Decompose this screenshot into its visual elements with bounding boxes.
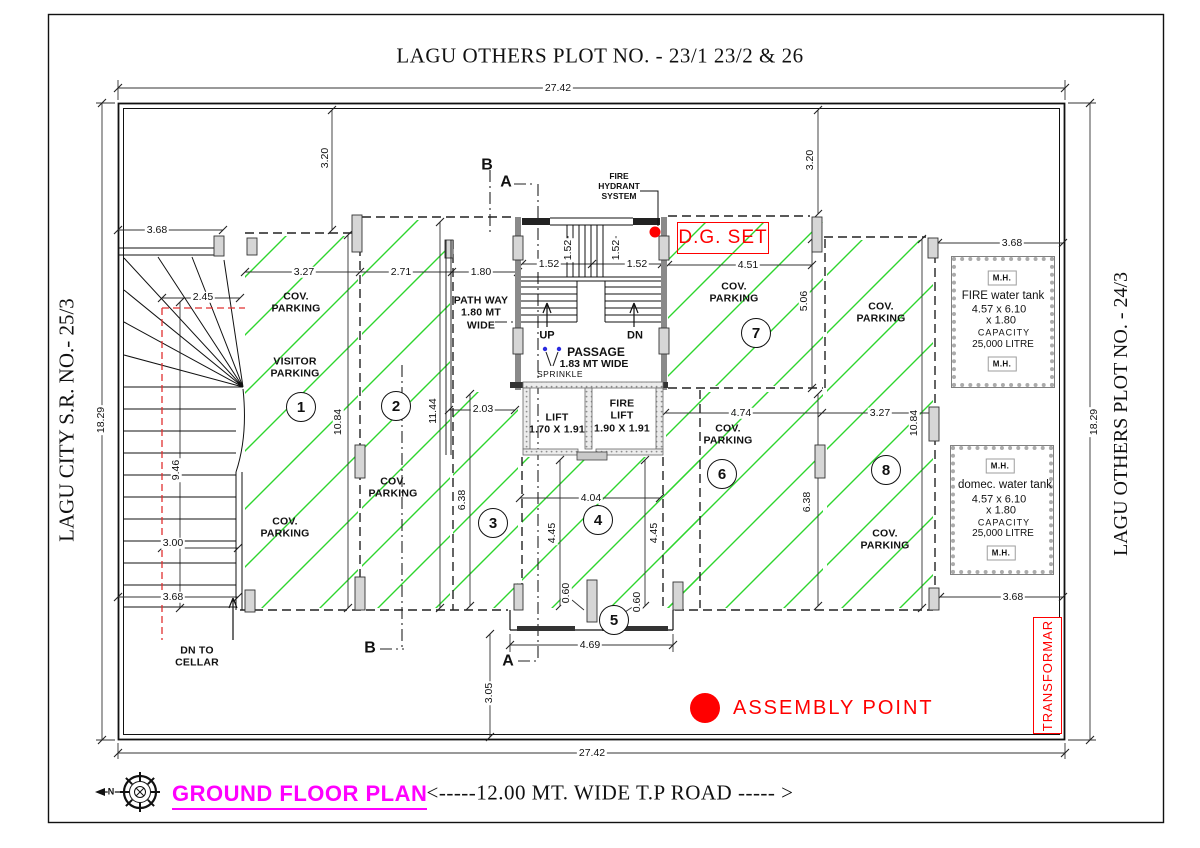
dim-1084-left: 10.84 xyxy=(333,407,344,437)
fire-tank-capacity-label: CAPACITY xyxy=(978,328,1030,339)
parking-circle-1: 1 xyxy=(286,392,316,422)
transformer-box: TRANSFORMAR xyxy=(1033,617,1062,734)
dim-320-right: 3.20 xyxy=(805,148,816,172)
dim-1084-right: 10.84 xyxy=(909,408,920,438)
dim-width-top: 27.42 xyxy=(543,83,573,94)
dim-152-a: 1.52 xyxy=(537,259,561,270)
dim-327-right: 3.27 xyxy=(868,408,892,419)
manhole-label-3: M.H. xyxy=(986,459,1015,474)
assembly-point-label: ASSEMBLY POINT xyxy=(733,697,934,721)
dim-469: 4.69 xyxy=(578,640,602,651)
parking-circle-4: 4 xyxy=(583,505,613,535)
cov-parking-label-3: COV. PARKING xyxy=(260,516,309,541)
parking-circle-2: 2 xyxy=(381,391,411,421)
parking-circle-6: 6 xyxy=(707,459,737,489)
fire-tank-name: FIRE water tank xyxy=(962,290,1044,304)
manhole-label-4: M.H. xyxy=(987,546,1016,561)
dim-060-left: 0.60 xyxy=(561,581,572,605)
dim-height-right: 18.29 xyxy=(1089,407,1100,437)
transformer-label: TRANSFORMAR xyxy=(1040,619,1055,730)
cov-parking-label-4: COV. PARKING xyxy=(709,281,758,306)
dim-474: 4.74 xyxy=(729,408,753,419)
fire-tank-size2: x 1.80 xyxy=(986,315,1016,328)
parking-circle-5: 5 xyxy=(599,605,629,635)
cov-parking-label-2: COV. PARKING xyxy=(368,476,417,501)
visitor-parking-label: VISITOR PARKING xyxy=(270,356,319,381)
right-plot-label: LAGU OTHERS PLOT NO. - 24/3 xyxy=(1110,272,1134,556)
north-letter: N xyxy=(108,787,115,798)
dim-203: 2.03 xyxy=(471,404,495,415)
dim-451: 4.51 xyxy=(736,260,760,271)
dim-width-bottom: 27.42 xyxy=(577,748,607,759)
dim-060-right: 0.60 xyxy=(632,590,643,614)
road-label: <-----12.00 MT. WIDE T.P ROAD ----- > xyxy=(426,781,793,806)
floor-plan-canvas: LAGU OTHERS PLOT NO. - 23/1 23/2 & 26 LA… xyxy=(0,0,1200,848)
domestic-tank-capacity-label: CAPACITY xyxy=(978,518,1030,529)
manhole-label-2: M.H. xyxy=(988,357,1017,372)
manhole-label-1: M.H. xyxy=(988,271,1017,286)
domestic-tank-capacity: 25,000 LITRE xyxy=(972,528,1034,540)
dim-506: 5.06 xyxy=(799,289,810,313)
dim-445-right: 4.45 xyxy=(649,521,660,545)
dim-180: 1.80 xyxy=(469,267,493,278)
dim-320-left: 3.20 xyxy=(320,146,331,170)
fire-tank-capacity: 25,000 LITRE xyxy=(972,339,1034,351)
dim-271: 2.71 xyxy=(389,267,413,278)
section-b-bottom: B xyxy=(364,640,376,659)
dim-1144: 11.44 xyxy=(428,396,439,426)
fire-hydrant-label: FIRE HYDRANT SYSTEM xyxy=(598,171,640,201)
dim-setback-bl: 3.68 xyxy=(161,592,185,603)
dim-300: 3.00 xyxy=(161,538,185,549)
dg-set-box: D.G. SET xyxy=(677,222,769,254)
assembly-point-marker xyxy=(690,693,720,723)
parking-circle-3: 3 xyxy=(478,508,508,538)
dim-404: 4.04 xyxy=(579,493,603,504)
parking-circle-7: 7 xyxy=(741,318,771,348)
plan-title: GROUND FLOOR PLAN xyxy=(172,781,427,810)
sprinkle-label: SPRINKLE xyxy=(537,369,583,379)
domestic-tank-name: domec. water tank xyxy=(958,479,1052,493)
page-title: LAGU OTHERS PLOT NO. - 23/1 23/2 & 26 xyxy=(396,44,803,69)
dim-setback-br: 3.68 xyxy=(1001,592,1025,603)
dg-set-label: D.G. SET xyxy=(678,227,767,249)
lift-label: LIFT 1.70 X 1.91 xyxy=(529,412,585,437)
dim-height-left: 18.29 xyxy=(96,405,107,435)
cov-parking-label-5: COV. PARKING xyxy=(703,423,752,448)
dim-245: 2.45 xyxy=(191,292,215,303)
dim-setback-tr: 3.68 xyxy=(1000,238,1024,249)
cov-parking-label-1: COV. PARKING xyxy=(271,291,320,316)
dim-152-d: 1.52 xyxy=(611,238,622,262)
pathway-label: PATH WAY 1.80 MT WIDE xyxy=(454,294,509,331)
dim-setback-tl: 3.68 xyxy=(145,225,169,236)
dim-152-b: 1.52 xyxy=(625,259,649,270)
section-a-bottom: A xyxy=(502,653,514,672)
dim-327-top: 3.27 xyxy=(292,267,316,278)
c ov-parking-label-7: COV. PARKING xyxy=(860,528,909,553)
parking-circle-8: 8 xyxy=(871,455,901,485)
dim-305: 3.05 xyxy=(484,681,495,705)
dim-946: 9.46 xyxy=(171,458,182,482)
dn-to-cellar-label: DN TO CELLAR xyxy=(175,645,219,670)
fire-lift-label: FIRE LIFT 1.90 X 1.91 xyxy=(594,397,650,434)
dim-152-c: 1.52 xyxy=(563,238,574,262)
sprinkler-symbol xyxy=(543,347,561,366)
domestic-tank-size2: x 1.80 xyxy=(986,505,1016,518)
section-b-top: B xyxy=(481,157,493,176)
up-label: UP xyxy=(539,330,554,343)
dim-638-left: 6.38 xyxy=(457,488,468,512)
cov-parking-label-6: COV. PARKING xyxy=(856,301,905,326)
dn-label: DN xyxy=(627,330,643,343)
left-plot-label: LAGU CITY S.R. NO.- 25/3 xyxy=(55,298,80,542)
cellar-ramp xyxy=(118,248,244,640)
dim-445-left: 4.45 xyxy=(547,521,558,545)
section-a-top: A xyxy=(500,174,512,193)
north-compass-icon xyxy=(95,772,160,812)
dim-638-right: 6.38 xyxy=(802,490,813,514)
